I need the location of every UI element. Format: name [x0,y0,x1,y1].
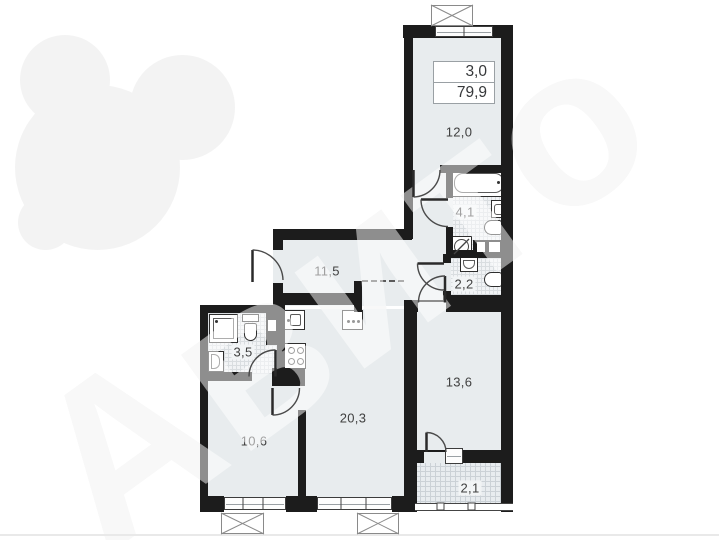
vent-box-icon [431,5,473,26]
wall [277,305,285,377]
room-label-bathroom-second: 3,5 [232,345,255,360]
zone-dashed-line [362,280,404,282]
vent-shaft-slot [489,242,500,252]
page-divider [0,534,719,536]
room-label-bathroom-large: 4,1 [454,205,477,220]
room-label-bedroom-right: 13,6 [446,375,473,390]
wall [404,300,417,512]
vent-box-icon [221,513,264,534]
wall [273,229,412,240]
window [317,497,392,510]
vent-shaft-slot [477,242,485,252]
stove-icon [284,343,306,369]
wall [404,25,413,239]
toilet-icon [242,314,259,341]
wall [280,293,362,305]
total-area: 79,9 [434,83,494,103]
room-label-bedroom-left: 10,6 [241,434,268,449]
balcony-door-opening [424,452,445,463]
bathtub-icon [450,169,508,197]
wall-partition [298,410,306,502]
window [435,26,493,37]
wall [354,281,362,312]
wall [200,496,224,512]
apartment-summary-box: 3,0 79,9 [433,61,495,104]
room-label-wc-small: 2,2 [453,277,476,292]
door-opening [413,165,440,173]
entrance-door-opening [273,250,283,283]
kitchen-sink-icon [284,310,305,330]
switch-panel-icon [342,310,363,330]
shower-icon [209,314,238,343]
window [224,497,286,510]
wall [286,496,317,512]
balcony-window [445,448,463,464]
watermark-circle [18,195,73,250]
balcony-railing [415,503,513,511]
watermark-circle [130,55,235,160]
wall [200,372,252,381]
rooms-count: 3,0 [434,62,494,83]
room-label-bedroom-top: 12,0 [446,125,473,140]
room-label-hallway: 11,5 [314,264,340,279]
door-opening [443,263,451,291]
door-opening [446,198,453,227]
sink-icon [460,256,478,272]
room-label-living-kitchen: 20,3 [340,411,367,426]
wall [200,305,285,313]
wall [272,368,305,386]
room-label-balcony: 2,1 [459,481,482,496]
floor-plan-image: Авито [0,0,719,540]
wall [200,305,208,512]
vent-box-icon [357,513,399,534]
door-opening [418,302,446,312]
sink-icon [208,351,224,372]
vent-shaft-slot [268,320,276,331]
wall [501,25,513,512]
